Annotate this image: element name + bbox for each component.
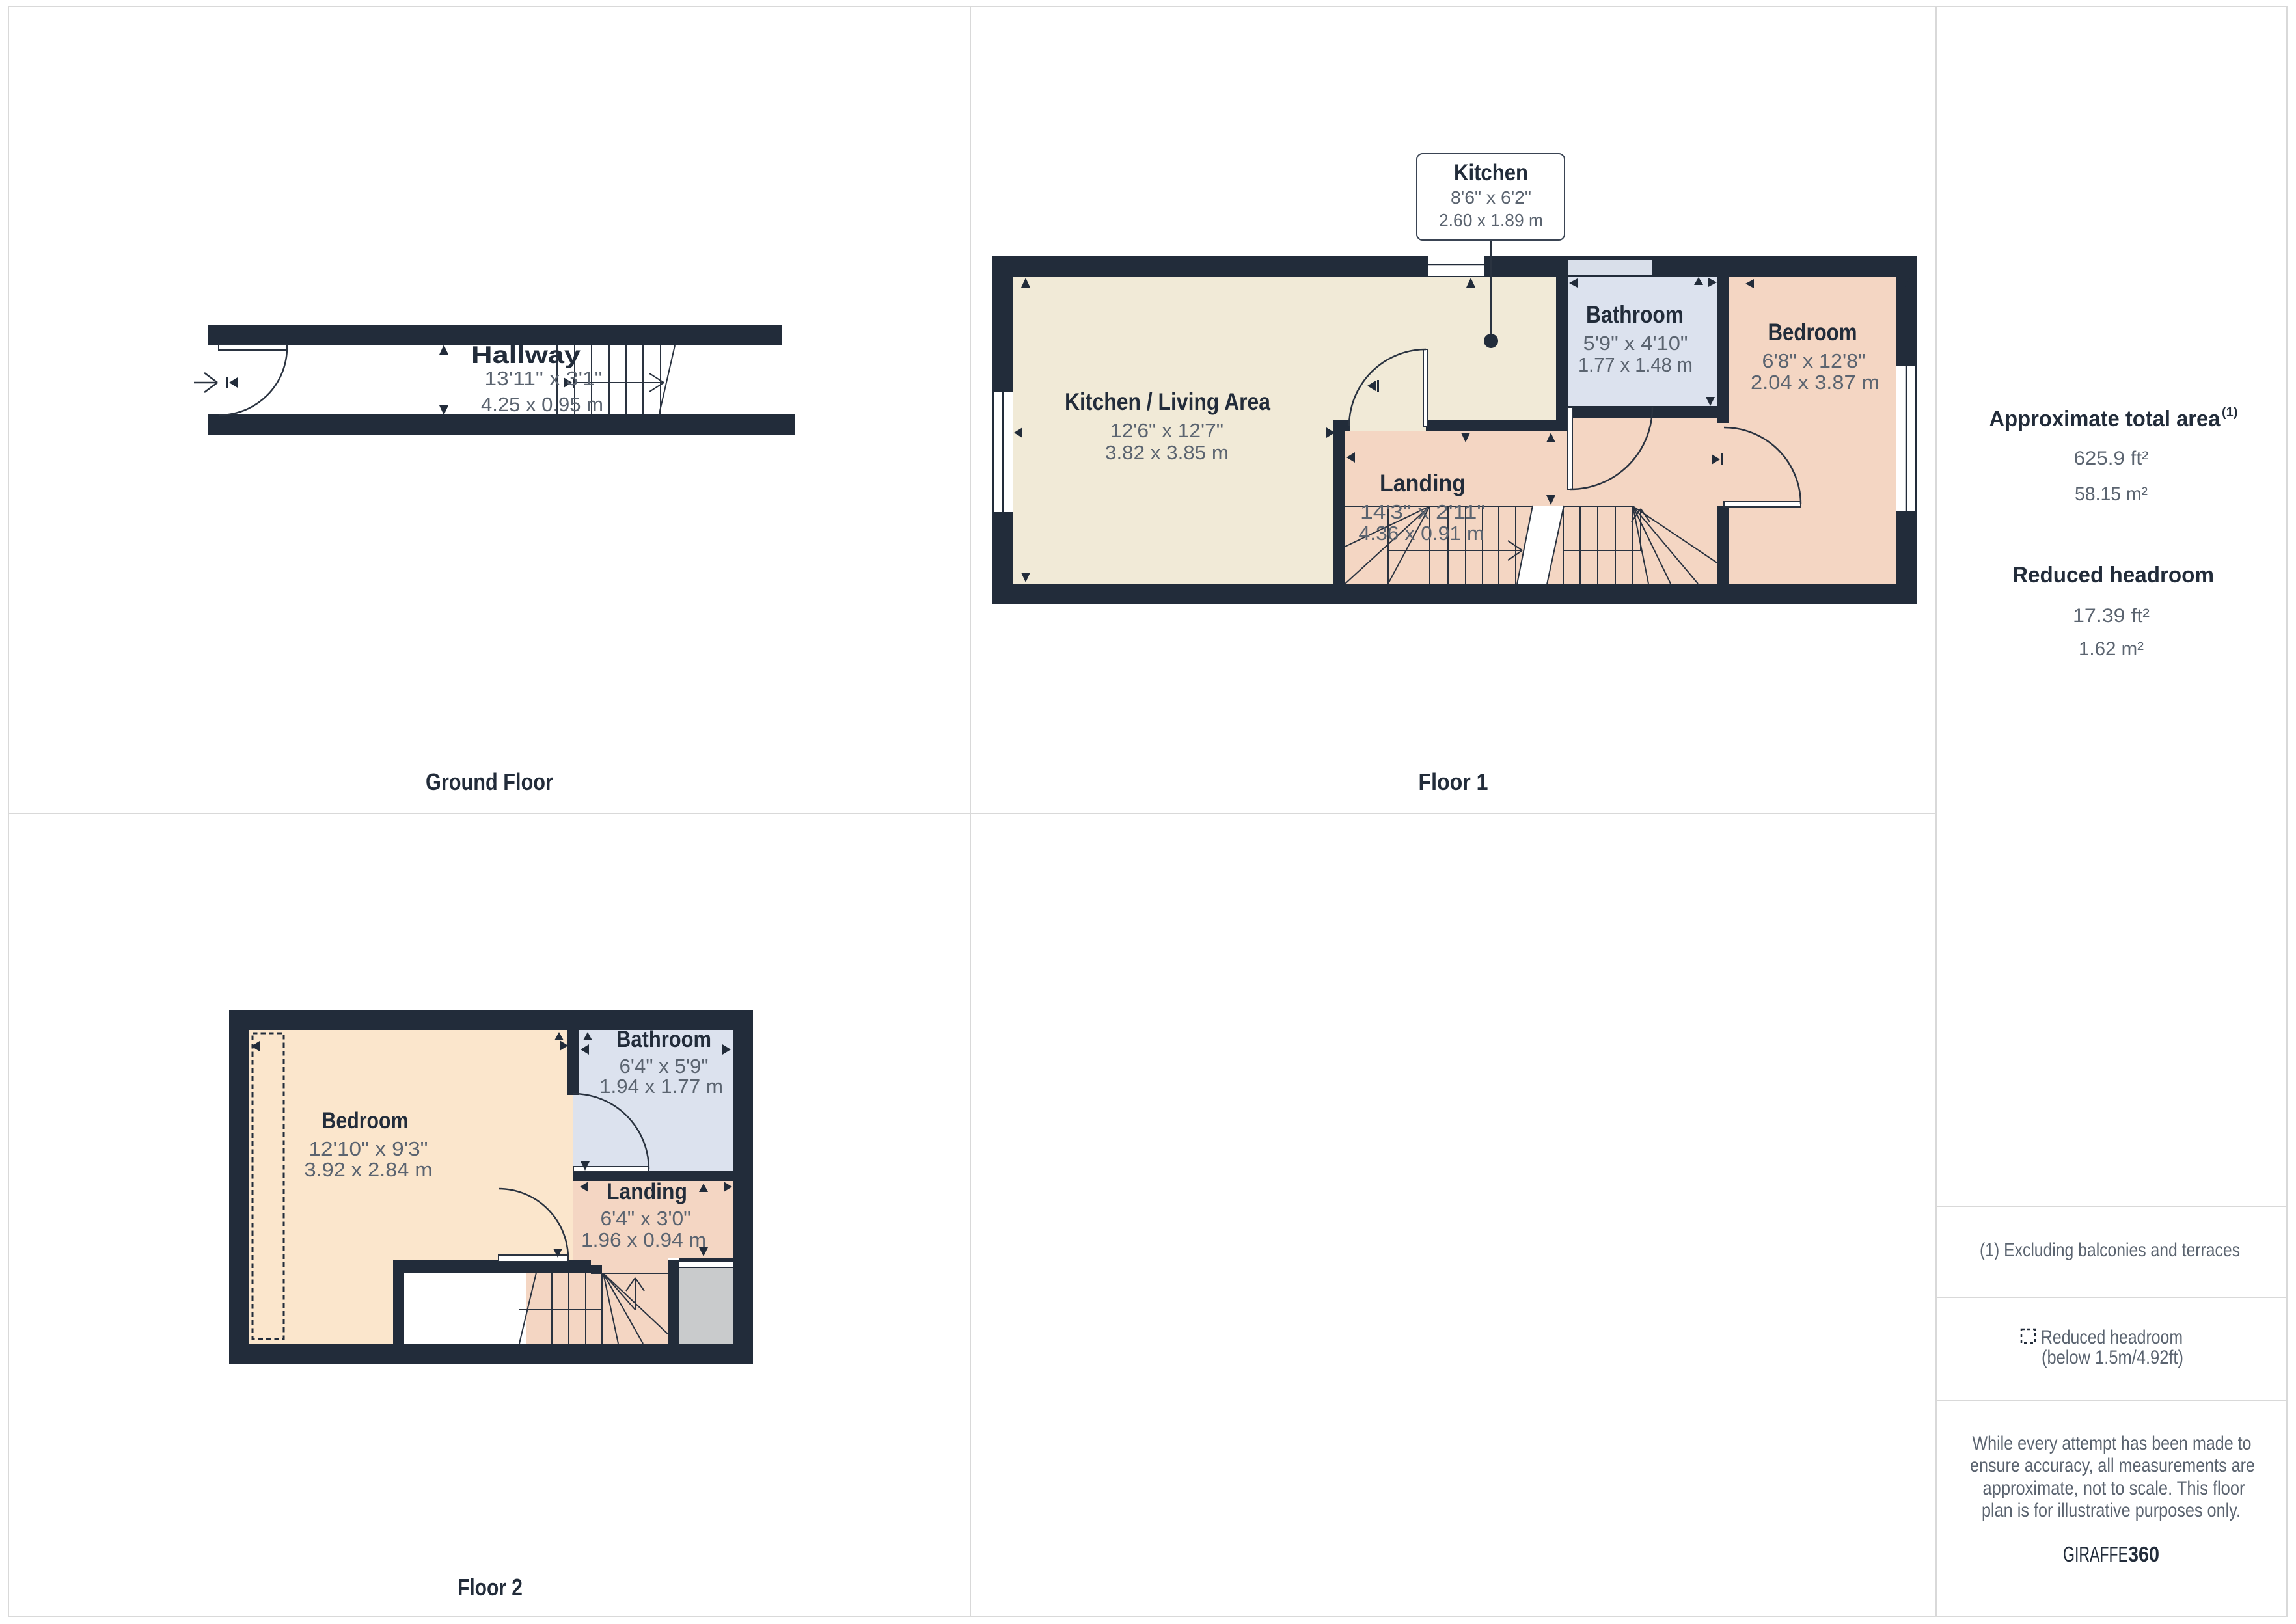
svg-text:While every attempt has been m: While every attempt has been made to [1973, 1433, 2252, 1454]
svg-text:GIRAFFE: GIRAFFE [2063, 1542, 2128, 1566]
svg-text:Kitchen / Living Area: Kitchen / Living Area [1065, 388, 1270, 415]
svg-text:Reduced headroom: Reduced headroom [2041, 1327, 2183, 1348]
svg-text:ensure accuracy, all measureme: ensure accuracy, all measurements are [1970, 1455, 2255, 1476]
svg-text:Reduced headroom: Reduced headroom [2012, 563, 2214, 588]
svg-text:Approximate total area: Approximate total area [1989, 407, 2221, 431]
svg-text:6'4" x 3'0": 6'4" x 3'0" [601, 1207, 691, 1230]
svg-text:Bedroom: Bedroom [322, 1108, 409, 1133]
svg-text:(below 1.5m/4.92ft): (below 1.5m/4.92ft) [2042, 1347, 2183, 1368]
svg-text:3.82 x 3.85 m: 3.82 x 3.85 m [1105, 441, 1229, 464]
svg-text:4.25 x 0.95 m: 4.25 x 0.95 m [481, 393, 603, 416]
svg-text:8'6" x 6'2": 8'6" x 6'2" [1451, 187, 1531, 208]
svg-text:625.9 ft²: 625.9 ft² [2074, 448, 2149, 469]
svg-text:Landing: Landing [1380, 470, 1466, 496]
svg-text:1.94 x 1.77 m: 1.94 x 1.77 m [599, 1075, 723, 1098]
svg-text:Bedroom: Bedroom [1768, 319, 1857, 345]
svg-text:Floor 1: Floor 1 [1419, 768, 1488, 795]
svg-text:360: 360 [2128, 1542, 2159, 1566]
svg-text:2.60 x 1.89 m: 2.60 x 1.89 m [1439, 210, 1543, 230]
svg-text:plan is for illustrative purpo: plan is for illustrative purposes only. [1982, 1500, 2241, 1521]
svg-text:58.15 m²: 58.15 m² [2075, 483, 2148, 505]
svg-text:Hallway: Hallway [471, 342, 581, 368]
svg-text:1.62 m²: 1.62 m² [2079, 638, 2144, 660]
svg-text:(1) Excluding balconies and te: (1) Excluding balconies and terraces [1980, 1239, 2240, 1261]
svg-text:13'11" x 3'1": 13'11" x 3'1" [485, 367, 603, 390]
svg-text:14'3" x 2'11": 14'3" x 2'11" [1360, 500, 1485, 523]
svg-text:Bathroom: Bathroom [616, 1027, 711, 1052]
svg-text:Landing: Landing [607, 1179, 687, 1204]
svg-text:4.36 x 0.91 m: 4.36 x 0.91 m [1359, 522, 1484, 545]
svg-text:12'6" x 12'7": 12'6" x 12'7" [1110, 419, 1223, 442]
svg-text:2.04 x 3.87 m: 2.04 x 3.87 m [1751, 371, 1879, 394]
svg-text:Kitchen: Kitchen [1454, 160, 1528, 185]
svg-text:5'9" x 4'10": 5'9" x 4'10" [1583, 332, 1688, 355]
svg-text:6'4" x 5'9": 6'4" x 5'9" [620, 1055, 709, 1077]
svg-text:1.96 x 0.94 m: 1.96 x 0.94 m [581, 1228, 706, 1251]
svg-text:Floor 2: Floor 2 [458, 1574, 523, 1601]
svg-text:12'10" x 9'3": 12'10" x 9'3" [309, 1137, 428, 1160]
svg-text:(1): (1) [2222, 405, 2237, 420]
svg-text:6'8" x 12'8": 6'8" x 12'8" [1762, 349, 1866, 372]
svg-text:17.39 ft²: 17.39 ft² [2073, 605, 2150, 627]
svg-text:approximate, not to scale. Thi: approximate, not to scale. This floor [1983, 1478, 2245, 1499]
svg-text:Ground Floor: Ground Floor [426, 768, 553, 795]
svg-text:1.77 x 1.48 m: 1.77 x 1.48 m [1578, 353, 1693, 376]
svg-text:3.92 x 2.84 m: 3.92 x 2.84 m [305, 1158, 433, 1181]
svg-text:Bathroom: Bathroom [1586, 301, 1684, 328]
